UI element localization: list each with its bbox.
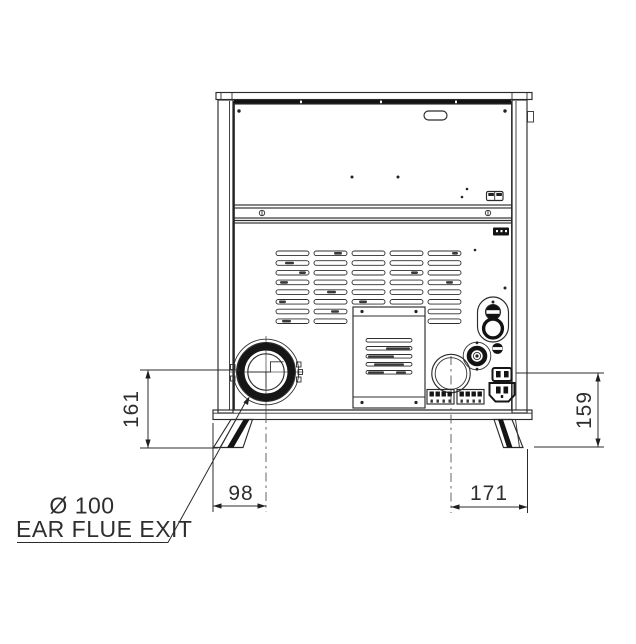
base-plate — [213, 410, 532, 420]
vent-slot — [390, 300, 423, 305]
left-foot — [214, 420, 253, 448]
vent-slot — [428, 270, 461, 275]
inspection-hole — [432, 354, 470, 392]
thermostat-reset-button — [485, 304, 500, 319]
top-panel — [216, 93, 532, 104]
vent-slot-mark — [334, 252, 342, 255]
service-plate — [478, 297, 509, 342]
rail-screw-left — [259, 210, 264, 215]
vent-slot-mark — [359, 301, 367, 304]
vent-slot — [352, 280, 385, 285]
vent-slot-mark — [279, 301, 286, 304]
vent-slot — [428, 309, 461, 314]
top-trim-bar — [234, 100, 511, 104]
vent-slot — [276, 290, 309, 295]
vent-slot-mark — [446, 281, 453, 284]
vent-slot — [428, 319, 461, 324]
dimensions: 161 159 98 171 — [120, 370, 604, 513]
lower-back-panel — [229, 223, 515, 414]
vent-slot — [314, 270, 347, 275]
vent-slot-mark — [452, 252, 458, 255]
motor-cover — [353, 307, 425, 408]
rail-screw-right — [485, 210, 490, 215]
vent-slot — [428, 261, 461, 266]
vent-slot — [314, 300, 347, 305]
vent-slot — [314, 280, 347, 285]
vent-slot — [314, 261, 347, 266]
callout-label-text: EAR FLUE EXIT — [16, 516, 192, 542]
middle-rail — [233, 208, 512, 223]
power-inlet — [490, 368, 515, 402]
power-socket — [490, 383, 515, 402]
vent-slot-mark — [327, 291, 336, 294]
small-screw-button — [492, 343, 503, 354]
dim-value-159: 159 — [573, 391, 596, 429]
callout-diameter-text: Ø 100 — [49, 493, 114, 519]
vent-slot-mark — [411, 271, 418, 274]
fan-motor — [463, 341, 491, 370]
vent-slot — [390, 280, 423, 285]
vent-slot — [352, 290, 385, 295]
vent-slot — [428, 290, 461, 295]
vent-slot-mark — [285, 262, 294, 265]
vent-slot — [276, 319, 309, 324]
vent-slot — [428, 300, 461, 305]
small-terminal-connector — [487, 192, 504, 201]
cabinet — [213, 93, 534, 448]
vent-slot — [390, 290, 423, 295]
vent-slot-mark — [331, 310, 339, 313]
vent-slot — [390, 251, 423, 256]
vent-slot — [314, 309, 347, 314]
terminal-block-right — [457, 390, 484, 405]
vent-slot — [314, 251, 347, 256]
dim-value-161: 161 — [120, 390, 143, 428]
vent-slot-mark — [282, 320, 291, 323]
vent-slot — [352, 300, 385, 305]
vent-slot — [390, 261, 423, 266]
dim-left-vertical: 161 — [120, 370, 240, 448]
vent-slot — [352, 251, 385, 256]
terminal-block-left — [427, 390, 454, 405]
vent-slot — [276, 251, 309, 256]
right-side-panel — [512, 100, 534, 413]
vent-slot — [428, 280, 461, 285]
handle-slot — [424, 111, 447, 120]
right-foot — [494, 420, 523, 448]
bushing-ring — [484, 319, 503, 338]
hinge-tab — [528, 112, 534, 123]
vent-slot — [276, 309, 309, 314]
ventilation-slots — [276, 251, 461, 324]
dim-value-171: 171 — [470, 482, 508, 505]
upper-back-panel — [233, 104, 512, 205]
black-connector — [493, 228, 509, 236]
motor-cover-vents — [366, 339, 412, 375]
vent-slot — [352, 261, 385, 266]
vent-slot — [352, 270, 385, 275]
power-switch — [493, 368, 512, 381]
vent-slot-mark — [299, 271, 306, 274]
vent-slot — [390, 270, 423, 275]
dim-value-98: 98 — [228, 482, 253, 505]
rear-view-technical-drawing: 161 159 98 171 — [0, 0, 636, 644]
left-side-panel — [218, 100, 234, 413]
vent-slot — [314, 319, 347, 324]
drawing-sheet: 161 159 98 171 — [0, 0, 636, 644]
vent-slot-mark — [280, 281, 288, 284]
flue-exit — [229, 336, 304, 414]
